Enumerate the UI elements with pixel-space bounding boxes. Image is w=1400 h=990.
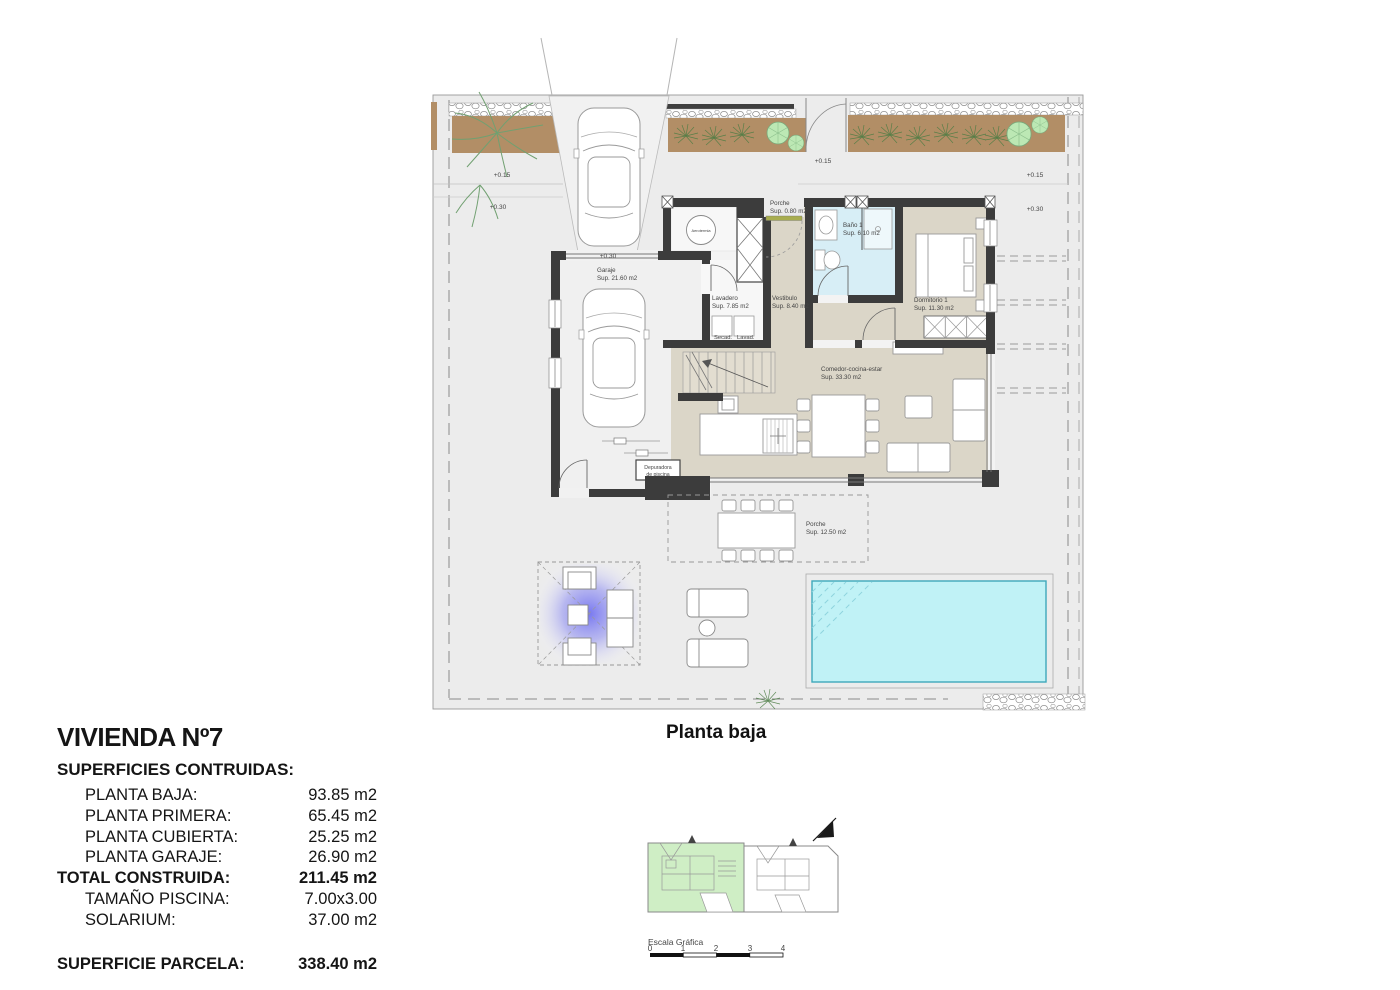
swimming-pool	[806, 574, 1053, 688]
summary-heading: SUPERFICIES CONTRUIDAS:	[57, 760, 377, 780]
plan-sheet: Garaje Sup. 21.60 m2 Lavadero Sup. 7.85 …	[0, 0, 1400, 990]
scale-bar: Escala Gráfica 0 1 2 3 4	[648, 937, 786, 957]
row-label: PLANTA GARAJE:	[85, 847, 222, 868]
room-sup-dormitorio1: Sup. 11.30 m2	[914, 305, 954, 312]
room-label-dormitorio1: Dormitorio 1	[914, 297, 948, 304]
scale-tick: 2	[714, 944, 719, 953]
row-label: SOLARIUM:	[85, 910, 176, 931]
row-label: TAMAÑO PISCINA:	[85, 889, 230, 910]
summary-parcel-row: SUPERFICIE PARCELA: 338.40 m2	[57, 954, 377, 975]
level-mark: +0.30	[490, 204, 507, 211]
room-label-garaje: Garaje	[597, 267, 616, 274]
row-label: SUPERFICIE PARCELA:	[57, 954, 245, 975]
row-value: 65.45 m2	[308, 806, 377, 827]
level-mark: +0.30	[600, 253, 617, 260]
room-label-bano1: Baño 1	[843, 222, 863, 229]
car-driveway	[574, 108, 644, 246]
room-sup-bano1: Sup. 6.10 m2	[843, 230, 880, 237]
room-sup-garaje: Sup. 21.60 m2	[597, 275, 638, 282]
dining-set	[797, 395, 879, 457]
row-label: PLANTA PRIMERA:	[85, 806, 231, 827]
entry-door	[766, 216, 802, 221]
summary-row: PLANTA BAJA: 93.85 m2	[57, 785, 377, 806]
scale-tick: 0	[648, 944, 653, 953]
surface-summary: VIVIENDA Nº7 SUPERFICIES CONTRUIDAS: PLA…	[57, 722, 377, 974]
vestibulo-floor	[771, 207, 805, 340]
scale-tick: 1	[681, 944, 686, 953]
summary-row: TAMAÑO PISCINA: 7.00x3.00	[57, 889, 377, 910]
row-value: 93.85 m2	[308, 785, 377, 806]
car-garage	[579, 289, 649, 427]
level-mark: +0.15	[815, 158, 832, 165]
scale-tick: 4	[781, 944, 786, 953]
planting-strip-left	[452, 116, 563, 153]
summary-row: PLANTA GARAJE: 26.90 m2	[57, 847, 377, 868]
scale-tick: 3	[748, 944, 753, 953]
room-label-vestibulo: Vestibulo	[772, 295, 798, 302]
label-lavadora: Lavad.	[737, 335, 755, 341]
scale-label: Escala Gráfica	[648, 937, 704, 947]
room-label-porche-entrada: Porche	[770, 200, 790, 207]
label-depuradora-1: Depuradora	[644, 465, 672, 471]
room-sup-lavadero: Sup. 7.85 m2	[712, 303, 749, 310]
row-value: 338.40 m2	[298, 954, 377, 975]
room-sup-porche-entrada: Sup. 0.80 m2	[770, 208, 807, 215]
shaft	[737, 206, 763, 282]
room-sup-vestibulo: Sup. 8.40 m2	[772, 303, 809, 310]
room-label-porche: Porche	[806, 521, 826, 528]
row-value: 211.45 m2	[299, 868, 377, 889]
room-sup-porche: Sup. 12.50 m2	[806, 529, 847, 536]
row-value: 25.25 m2	[308, 827, 377, 848]
key-plan	[648, 818, 838, 912]
summary-row: PLANTA CUBIERTA: 25.25 m2	[57, 827, 377, 848]
label-aerotermia: Aerotermia	[691, 228, 711, 233]
project-title: VIVIENDA Nº7	[57, 722, 377, 753]
row-value: 26.90 m2	[308, 847, 377, 868]
label-secadora: Secad.	[714, 335, 732, 341]
row-value: 37.00 m2	[308, 910, 377, 931]
summary-row: SOLARIUM: 37.00 m2	[57, 910, 377, 931]
summary-total-row: TOTAL CONSTRUIDA: 211.45 m2	[57, 868, 377, 889]
room-sup-comedor: Sup. 33.30 m2	[821, 374, 862, 381]
level-mark: +0.15	[1027, 172, 1044, 179]
room-label-lavadero: Lavadero	[712, 295, 738, 302]
row-label: PLANTA CUBIERTA:	[85, 827, 238, 848]
level-mark: +0.30	[1027, 206, 1044, 213]
row-value: 7.00x3.00	[305, 889, 377, 910]
stone-border-bottom	[983, 694, 1085, 710]
level-mark: +0.15	[494, 172, 511, 179]
row-label: PLANTA BAJA:	[85, 785, 198, 806]
row-label: TOTAL CONSTRUIDA:	[57, 868, 230, 889]
wardrobe	[924, 316, 988, 338]
staircase	[683, 352, 775, 393]
summary-row: PLANTA PRIMERA: 65.45 m2	[57, 806, 377, 827]
pergola-lounge	[538, 562, 640, 665]
label-depuradora-2: de piscina	[646, 472, 669, 478]
north-arrow-icon	[813, 818, 836, 841]
key-plan-house-highlighted	[648, 843, 744, 912]
room-label-comedor: Comedor-cocina-estar	[821, 366, 882, 373]
plan-title: Planta baja	[666, 722, 766, 744]
planting-strip-right2	[848, 115, 1065, 152]
